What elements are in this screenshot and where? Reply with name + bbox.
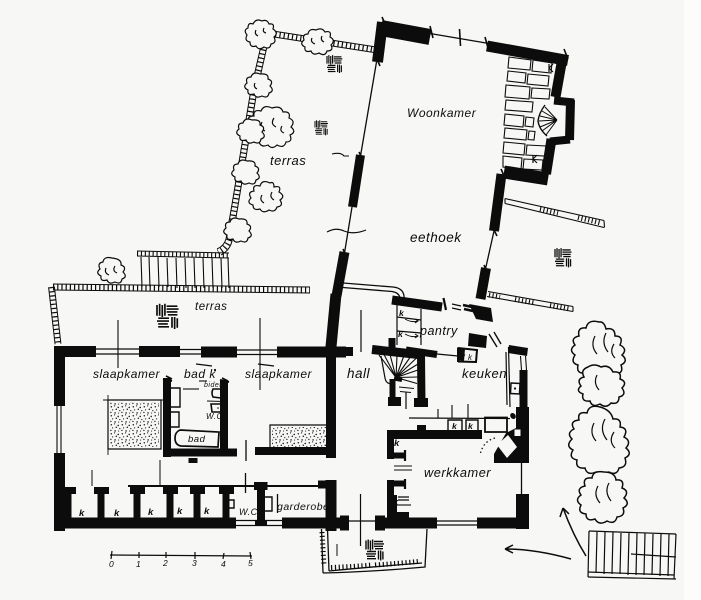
svg-text:k: k xyxy=(114,508,120,519)
svg-text:Woonkamer: Woonkamer xyxy=(407,106,477,120)
svg-text:k: k xyxy=(79,508,85,519)
svg-text:k: k xyxy=(468,353,473,362)
svg-text:slaapkamer: slaapkamer xyxy=(93,367,161,381)
svg-text:terras: terras xyxy=(195,301,227,313)
svg-text:5: 5 xyxy=(248,558,253,568)
svg-text:k: k xyxy=(204,506,210,517)
svg-text:W.C.: W.C. xyxy=(239,507,261,517)
svg-text:k: k xyxy=(148,507,154,518)
svg-text:k: k xyxy=(393,497,399,508)
svg-text:bidet: bidet xyxy=(204,382,222,389)
svg-text:k: k xyxy=(394,438,400,449)
svg-text:0: 0 xyxy=(109,559,114,569)
svg-text:bad k: bad k xyxy=(184,367,216,381)
svg-text:garderobe: garderobe xyxy=(277,501,329,513)
svg-text:werkkamer: werkkamer xyxy=(424,465,491,480)
svg-text:terras: terras xyxy=(270,153,306,168)
svg-text:k: k xyxy=(177,506,183,517)
svg-text:3: 3 xyxy=(192,558,197,568)
svg-text:pantry: pantry xyxy=(419,324,458,338)
svg-text:4: 4 xyxy=(221,559,226,569)
svg-text:W.C: W.C xyxy=(206,412,223,421)
svg-text:eethoek: eethoek xyxy=(410,230,462,245)
svg-text:keuken: keuken xyxy=(462,366,507,381)
svg-text:y: y xyxy=(460,352,466,361)
svg-text:1: 1 xyxy=(136,559,141,569)
svg-text:bad: bad xyxy=(188,434,206,445)
svg-text:slaapkamer: slaapkamer xyxy=(245,367,313,381)
svg-text:hall: hall xyxy=(347,366,371,381)
svg-text:2: 2 xyxy=(162,558,168,568)
